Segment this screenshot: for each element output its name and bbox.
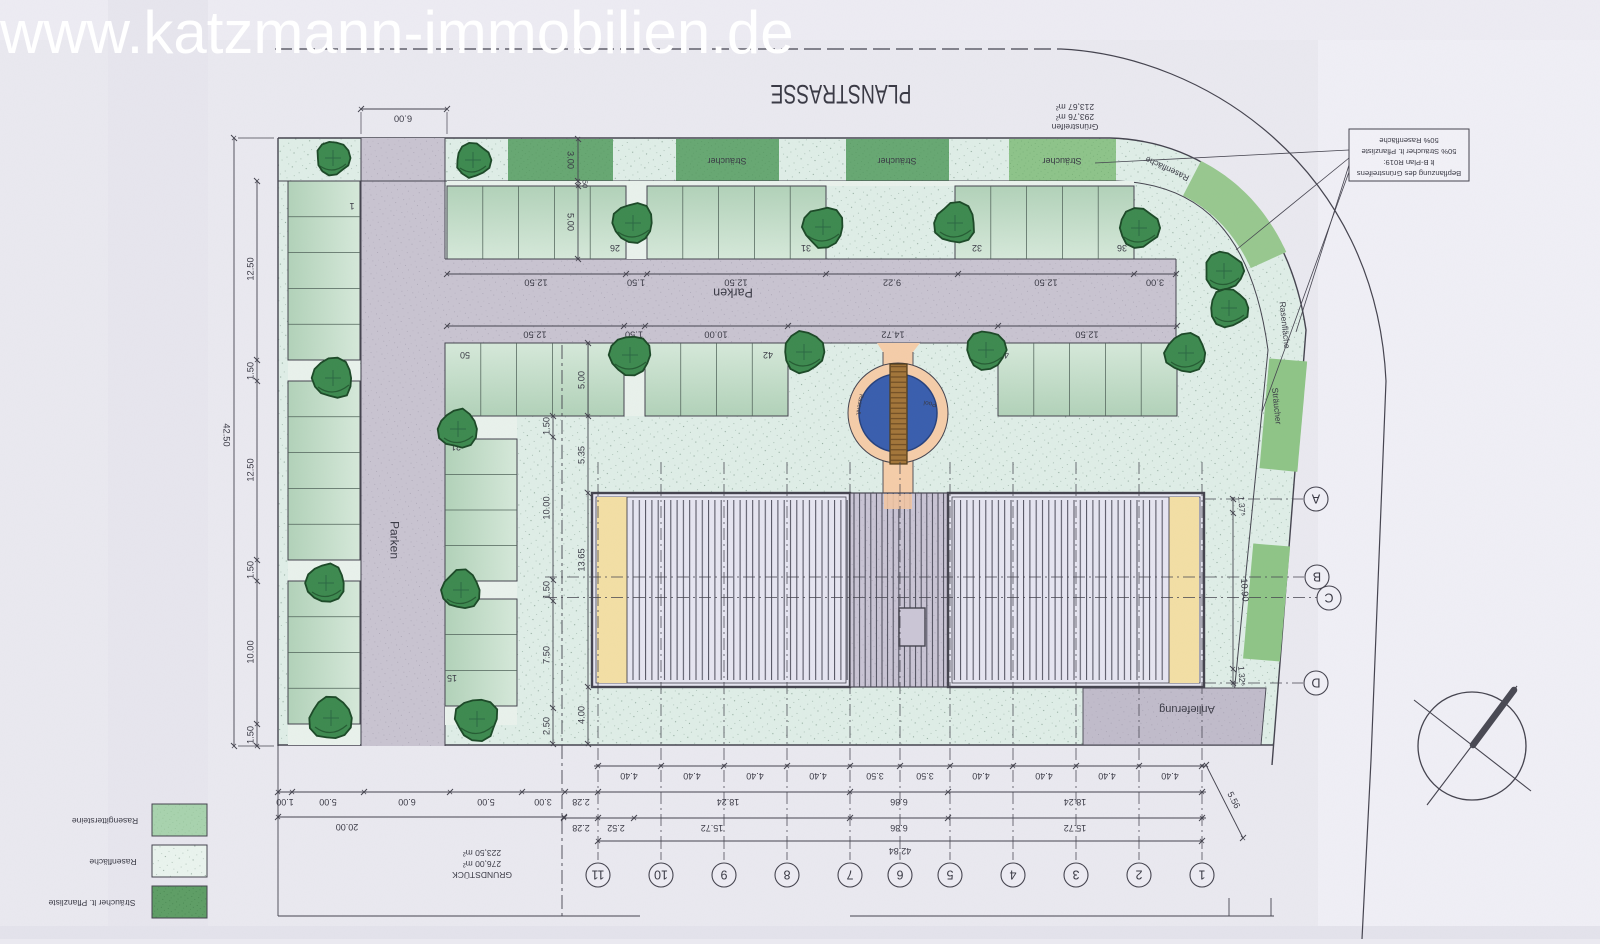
- svg-text:www.katzmann-immobilien.de: www.katzmann-immobilien.de: [0, 0, 794, 66]
